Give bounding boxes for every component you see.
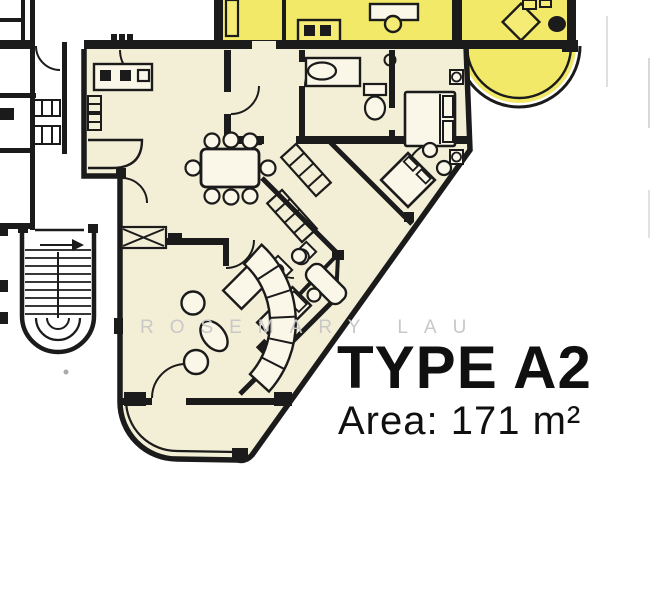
bay-window-floor [462, 46, 576, 103]
side-table-round [182, 292, 205, 315]
pillow [443, 121, 453, 142]
toilet [364, 84, 386, 120]
staircase [18, 224, 98, 352]
plan-area-label: Area: 171 m² [338, 401, 581, 441]
nightstand-round [292, 249, 306, 263]
vanity-counter [306, 58, 360, 86]
scan-speck [64, 370, 69, 375]
nightstand [450, 70, 463, 84]
floorplan-drawing [0, 0, 660, 600]
pillow [443, 96, 453, 117]
nightstand [450, 150, 463, 164]
side-table-round [184, 350, 208, 374]
stove [298, 20, 340, 42]
chair-silhouette [548, 16, 566, 32]
stove-counter [94, 64, 152, 90]
fixture-hatched [34, 100, 60, 144]
cabinet [226, 0, 238, 36]
nightstand-round [437, 161, 451, 175]
plan-title: TYPE A2 [337, 338, 592, 398]
floorplan-page: ROSEMARY LAU TYPE A2 Area: 171 m² [0, 0, 660, 600]
scan-artifacts [607, 16, 649, 238]
dining-table [201, 149, 259, 187]
nightstand-round [308, 289, 321, 302]
nightstand-round [423, 143, 437, 157]
